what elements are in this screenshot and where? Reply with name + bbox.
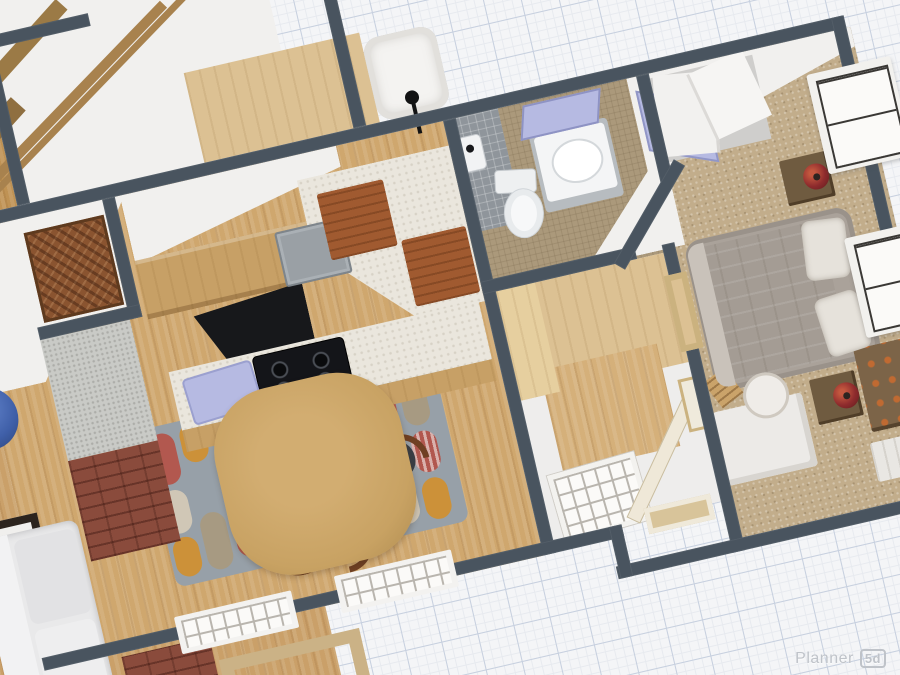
rug-patch [419,475,454,522]
bed-pillow [800,217,851,282]
planner5d-watermark: Planner 5d [795,649,886,668]
watermark-badge: 5d [860,649,886,668]
rotated-scene [0,0,900,675]
watermark-text: Planner [795,650,854,668]
floorplan-3d-viewport[interactable]: Planner 5d [0,0,900,675]
